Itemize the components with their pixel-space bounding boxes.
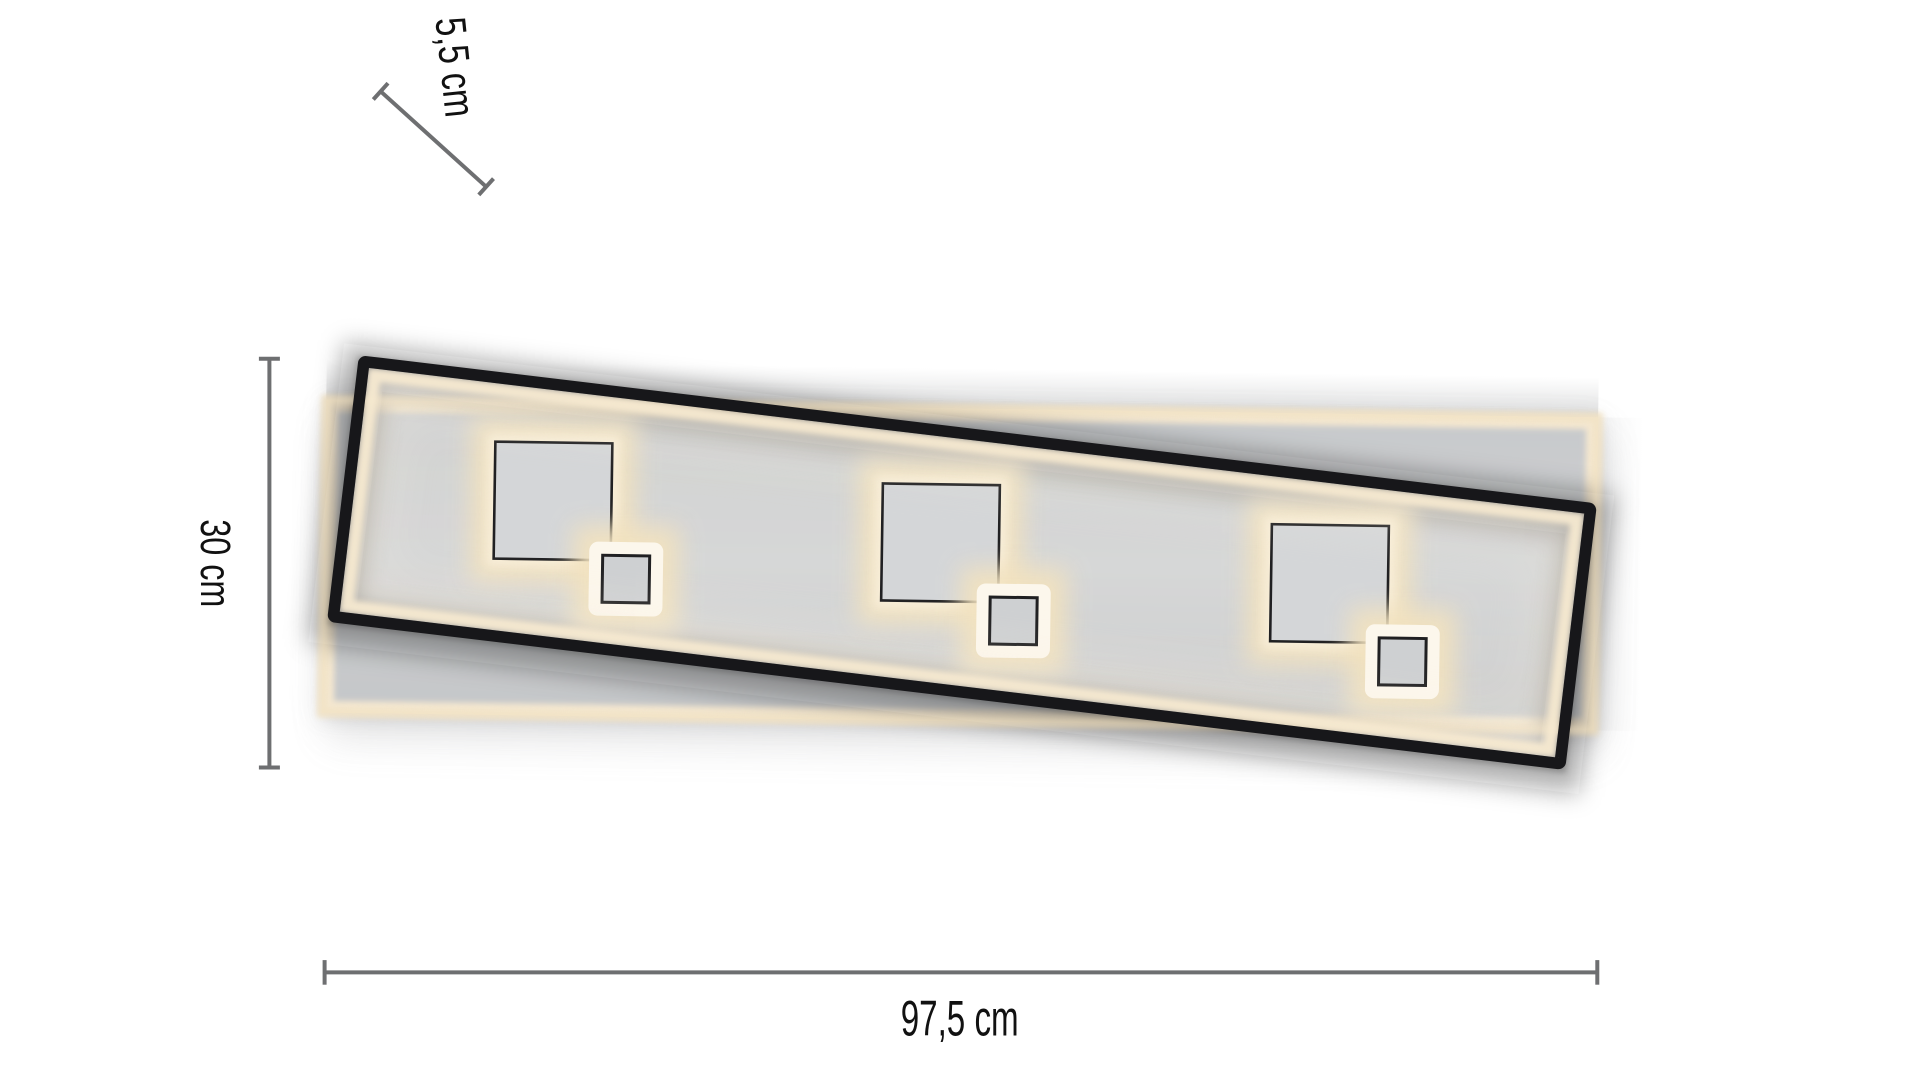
svg-text:30 cm: 30 cm	[191, 519, 239, 607]
svg-text:97,5 cm: 97,5 cm	[901, 990, 1019, 1046]
